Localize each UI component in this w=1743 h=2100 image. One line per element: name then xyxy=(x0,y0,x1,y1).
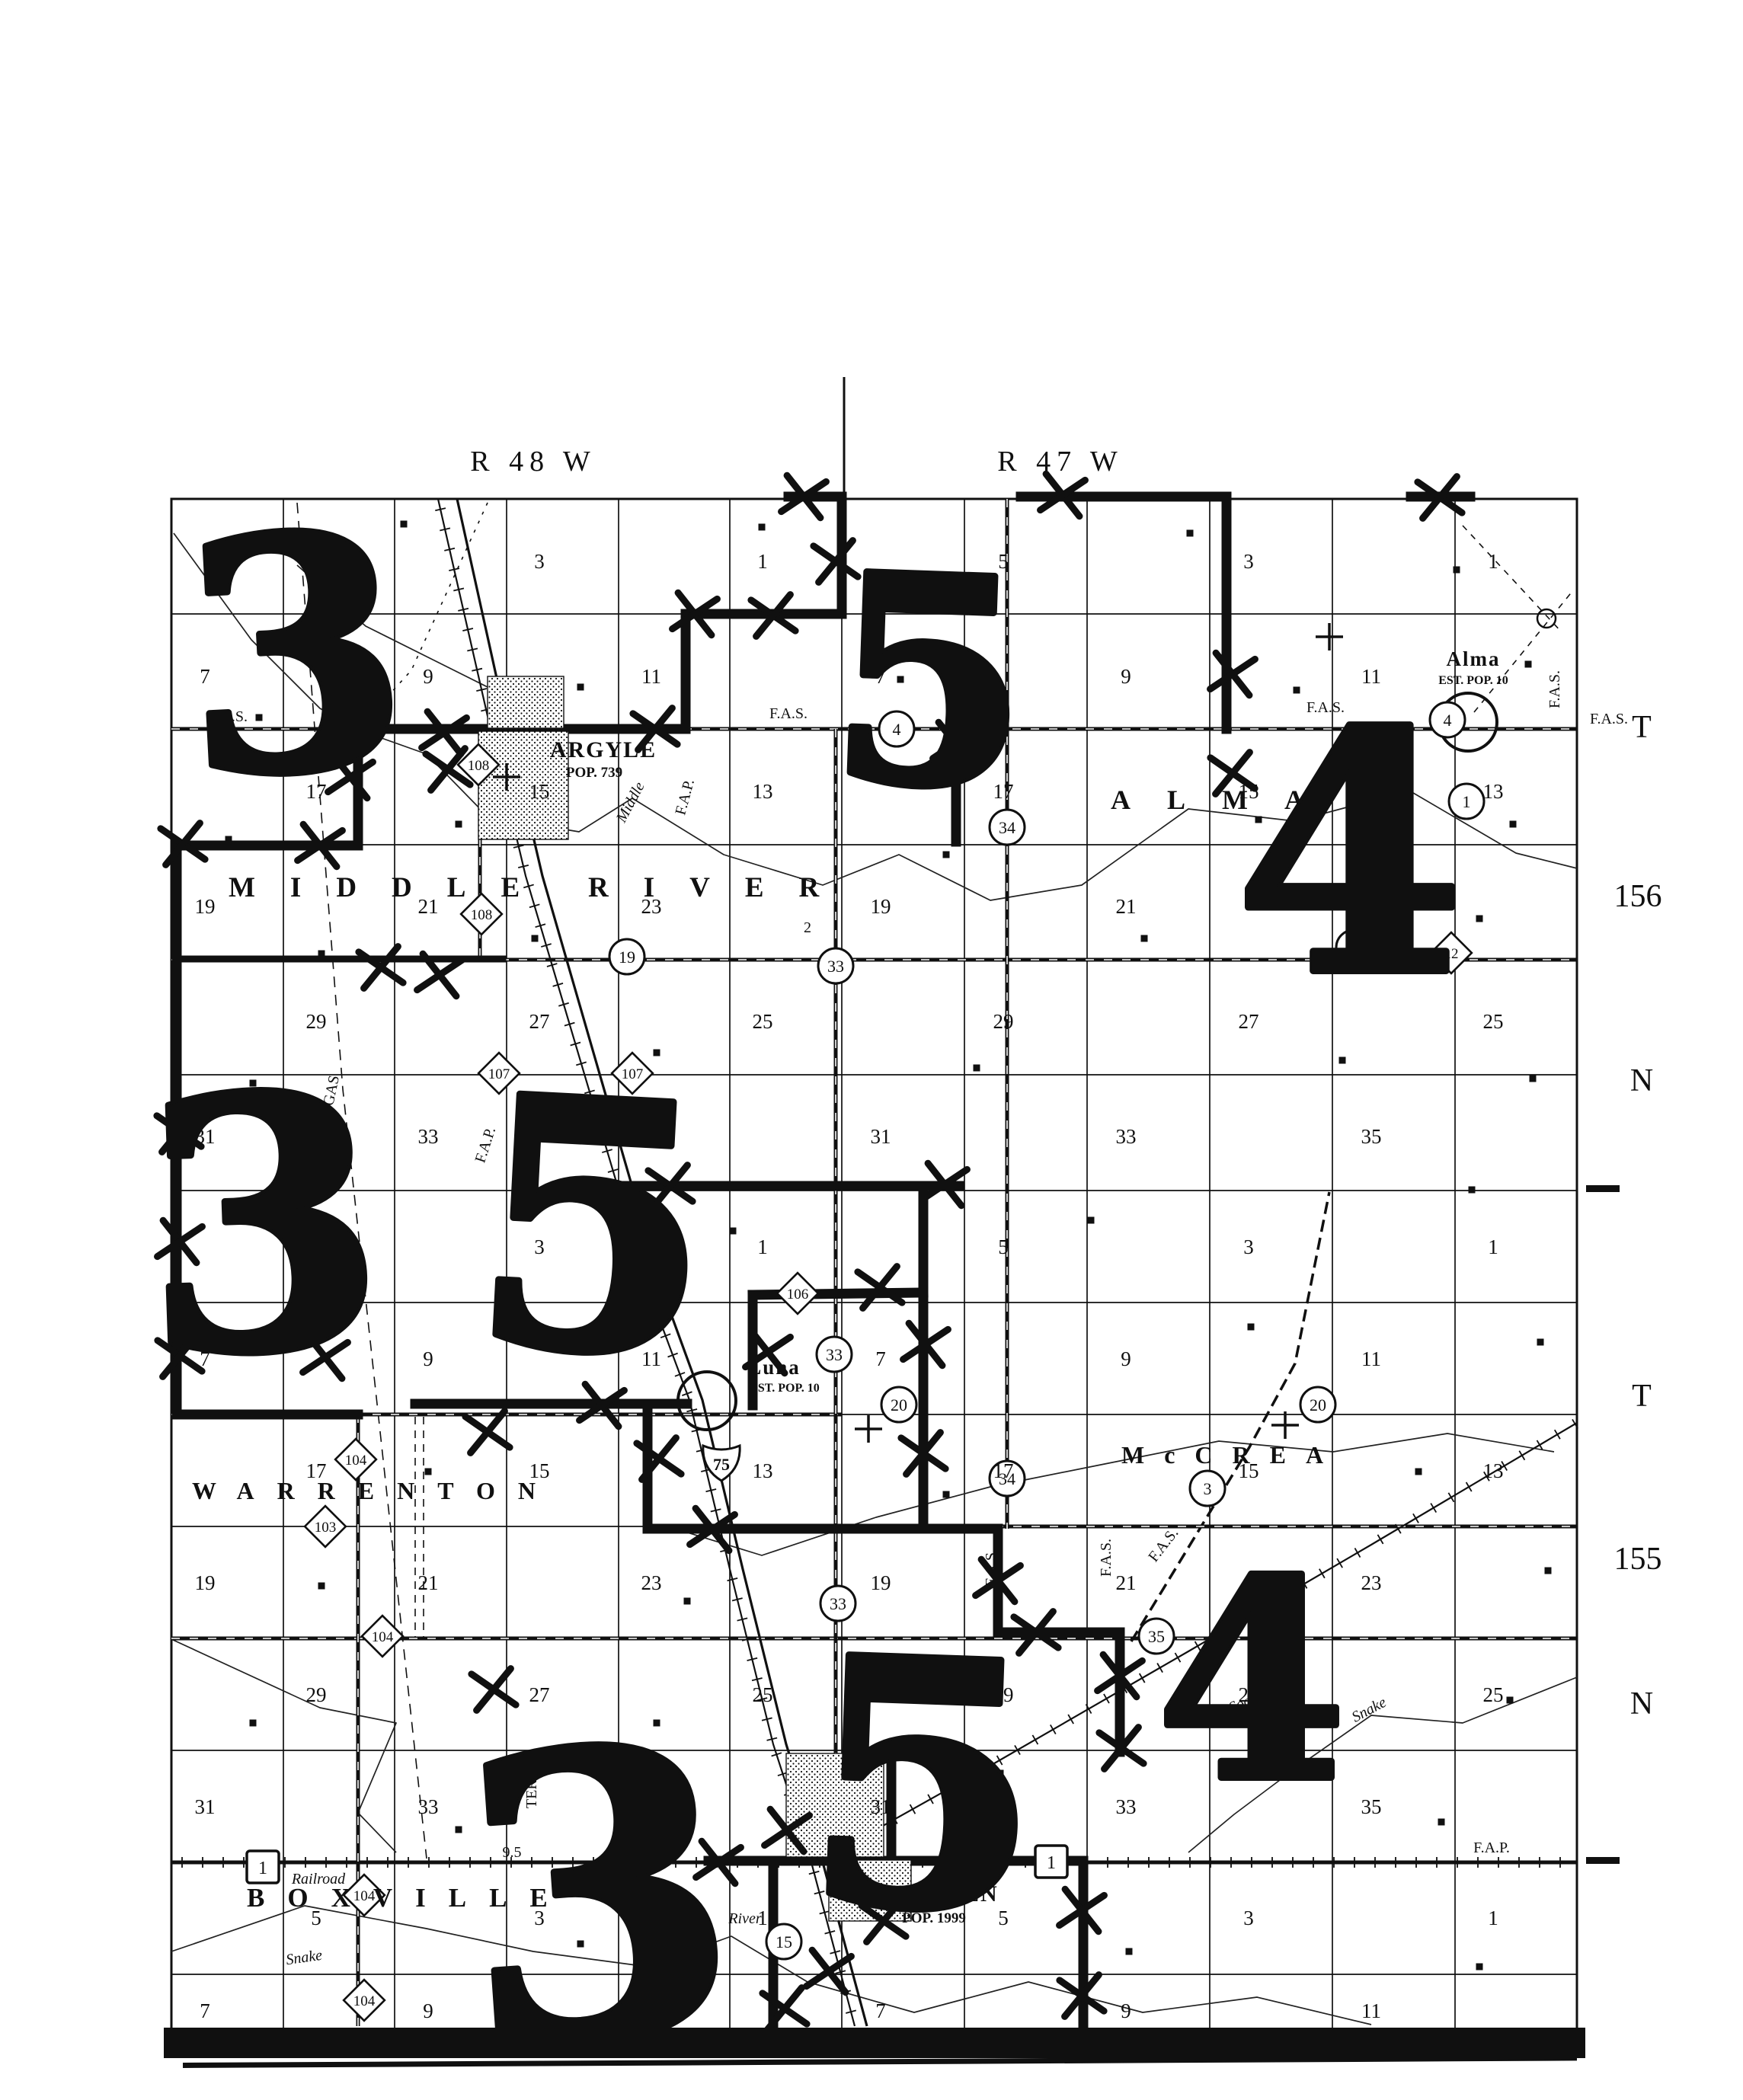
section-number: 13 xyxy=(753,1459,773,1482)
handwritten-district-digit: 3 xyxy=(174,463,417,850)
township-margin-label: N xyxy=(1630,1686,1653,1721)
route-box-label: 1 xyxy=(258,1859,267,1878)
section-number: 25 xyxy=(1483,1683,1504,1706)
farmstead-dot xyxy=(1141,935,1148,942)
section-number: 33 xyxy=(1116,1795,1137,1818)
map-small-label: F.A.S. xyxy=(769,705,808,722)
township-name: MIDDLE xyxy=(229,872,555,903)
section-number: 21 xyxy=(418,1571,439,1594)
map-small-label: F.A.S. xyxy=(1590,711,1628,727)
farmstead-dot xyxy=(318,951,325,957)
section-number: 3 xyxy=(534,550,545,573)
handwritten-district-digit: 5 xyxy=(824,512,1035,854)
farmstead-dot xyxy=(943,1491,950,1498)
section-number: 1 xyxy=(757,1235,768,1258)
section-number: 17 xyxy=(993,1459,1014,1482)
route-circle-label: 15 xyxy=(776,1932,792,1951)
section-number: 19 xyxy=(195,1571,216,1594)
route-circle-label: 19 xyxy=(619,948,635,967)
farmstead-dot xyxy=(1454,567,1460,574)
town-population: EST. POP. 10 xyxy=(750,1382,820,1395)
section-number: 35 xyxy=(1361,1125,1382,1148)
county-highway-map: 4411919333333343420203531510810810710710… xyxy=(0,0,1743,2100)
section-number: 13 xyxy=(1483,1459,1504,1482)
farmstead-dot xyxy=(1469,1187,1476,1194)
section-number: 29 xyxy=(306,1683,327,1706)
route-diamond-label: 103 xyxy=(315,1520,337,1536)
route-circle-label: 20 xyxy=(891,1395,907,1414)
section-number: 5 xyxy=(998,1235,1009,1258)
farmstead-dot xyxy=(577,684,584,691)
handwritten-district-digit: 5 xyxy=(463,1021,722,1436)
section-number: 7 xyxy=(875,1999,886,2022)
section-number: 33 xyxy=(418,1795,439,1818)
farmstead-dot xyxy=(1088,1217,1095,1224)
section-number: 3 xyxy=(1243,1907,1254,1929)
route-circle-label: 20 xyxy=(1310,1395,1326,1414)
map-small-label: F.A.S. xyxy=(983,1549,999,1587)
section-number: 25 xyxy=(753,1010,773,1033)
map-small-label: F.A.S. xyxy=(1546,670,1563,708)
section-number: 7 xyxy=(875,1347,886,1370)
section-number: 7 xyxy=(200,1999,210,2022)
farmstead-dot xyxy=(1507,1697,1514,1704)
section-number: 13 xyxy=(1483,780,1504,803)
handwritten-district-digit: 4 xyxy=(1235,660,1466,1050)
farmstead-dot xyxy=(1126,1948,1133,1955)
town-name: ARGYLE xyxy=(550,737,657,762)
section-number: 11 xyxy=(1361,1347,1381,1370)
handwritten-district-digit: 4 xyxy=(1156,1520,1348,1843)
farmstead-dot xyxy=(1545,1568,1552,1574)
route-diamond-label: 104 xyxy=(372,1629,394,1645)
section-number: 9 xyxy=(423,1347,433,1370)
range-label: R 47 W xyxy=(997,446,1124,478)
route-diamond-label: 106 xyxy=(787,1287,809,1303)
section-number: 1 xyxy=(1488,550,1498,573)
farmstead-dot xyxy=(425,1469,432,1475)
section-number: 33 xyxy=(1116,1125,1137,1148)
route-box-label: 1 xyxy=(1047,1853,1056,1873)
farmstead-dot xyxy=(318,1583,325,1590)
map-small-label: 2 xyxy=(804,919,811,936)
section-number: 9 xyxy=(1121,1999,1131,2022)
section-number: 33 xyxy=(418,1125,439,1148)
map-small-label: F.A.P. xyxy=(1473,1839,1510,1856)
route-diamond-label: 104 xyxy=(353,1993,376,2009)
section-number: 25 xyxy=(1483,1010,1504,1033)
section-number: 31 xyxy=(195,1795,216,1818)
section-number: 31 xyxy=(871,1125,891,1148)
farmstead-dot xyxy=(1525,661,1532,668)
route-circle-label: 33 xyxy=(827,957,844,976)
farmstead-dot xyxy=(1476,916,1483,922)
section-number: 1 xyxy=(1488,1235,1498,1258)
farmstead-dot xyxy=(1339,1057,1346,1064)
range-label: R 48 W xyxy=(470,446,596,478)
section-number: 15 xyxy=(529,780,550,803)
farmstead-dot xyxy=(401,521,408,528)
township-margin-label: N xyxy=(1630,1063,1653,1098)
farmstead-dot xyxy=(250,1720,257,1727)
town-name: Luna xyxy=(747,1356,801,1379)
route-diamond-label: 108 xyxy=(468,758,490,774)
map-small-label: Railroad xyxy=(291,1871,346,1887)
farmstead-dot xyxy=(1187,530,1194,537)
us-route-shield-label: 75 xyxy=(713,1455,730,1474)
route-circle-label: 33 xyxy=(826,1345,843,1364)
route-circle-label: 3 xyxy=(1204,1479,1212,1498)
farmstead-dot xyxy=(1476,1964,1483,1971)
township-margin-label: T xyxy=(1632,1379,1652,1414)
route-diamond-label: 104 xyxy=(345,1453,367,1469)
farmstead-dot xyxy=(1248,1324,1255,1331)
township-margin-label: 155 xyxy=(1614,1542,1662,1577)
township-margin-label: T xyxy=(1632,710,1652,745)
section-number: 25 xyxy=(753,1683,773,1706)
farmstead-dot xyxy=(759,524,766,531)
map-small-label: F.A.S. xyxy=(1098,1539,1115,1577)
section-number: 11 xyxy=(1361,1999,1381,2022)
township-name: RIVER xyxy=(588,872,854,903)
bottom-heavy-bar xyxy=(164,2028,1585,2058)
township-name: McCREA xyxy=(1121,1441,1343,1469)
section-number: 13 xyxy=(753,780,773,803)
farmstead-dot xyxy=(730,1228,737,1235)
route-diamond-label: 108 xyxy=(471,907,493,923)
section-number: 19 xyxy=(195,895,216,918)
section-number: 23 xyxy=(641,1571,662,1594)
section-number: 9 xyxy=(1121,665,1131,688)
section-number: 9 xyxy=(1121,1347,1131,1370)
section-number: 11 xyxy=(641,665,661,688)
farmstead-dot xyxy=(456,821,462,828)
farmstead-dot xyxy=(1438,1819,1445,1826)
town-population: POP. 739 xyxy=(566,765,622,781)
section-number: 21 xyxy=(1116,895,1137,918)
section-number: 3 xyxy=(1243,550,1254,573)
township-margin-tick xyxy=(1586,1185,1620,1192)
handwritten-district-digit: 3 xyxy=(136,1019,391,1434)
farmstead-dot xyxy=(1537,1339,1544,1346)
township-name: WARRENTON xyxy=(192,1477,558,1504)
section-number: 21 xyxy=(1116,1571,1137,1594)
farmstead-dot xyxy=(1415,1469,1422,1475)
township-margin-label: 156 xyxy=(1614,879,1662,914)
section-number: 9 xyxy=(423,665,433,688)
farmstead-dot xyxy=(1510,821,1517,828)
section-number: 29 xyxy=(993,1010,1014,1033)
handwritten-district-digit: 5 xyxy=(798,1582,1048,1988)
section-number: 19 xyxy=(871,895,891,918)
township-margin-tick xyxy=(1586,1857,1620,1864)
section-number: 1 xyxy=(757,550,768,573)
section-number: 1 xyxy=(1488,1907,1498,1929)
section-number: 23 xyxy=(1361,1571,1382,1594)
town-shaded-area xyxy=(488,676,564,728)
section-number: 9 xyxy=(423,1999,433,2022)
farmstead-dot xyxy=(974,1065,980,1072)
farmstead-dot xyxy=(943,852,950,858)
section-number: 3 xyxy=(1243,1235,1254,1258)
farmstead-dot xyxy=(1530,1076,1537,1082)
farmstead-dot xyxy=(684,1598,691,1605)
section-number: 35 xyxy=(1361,1795,1382,1818)
farmstead-dot xyxy=(532,935,539,942)
